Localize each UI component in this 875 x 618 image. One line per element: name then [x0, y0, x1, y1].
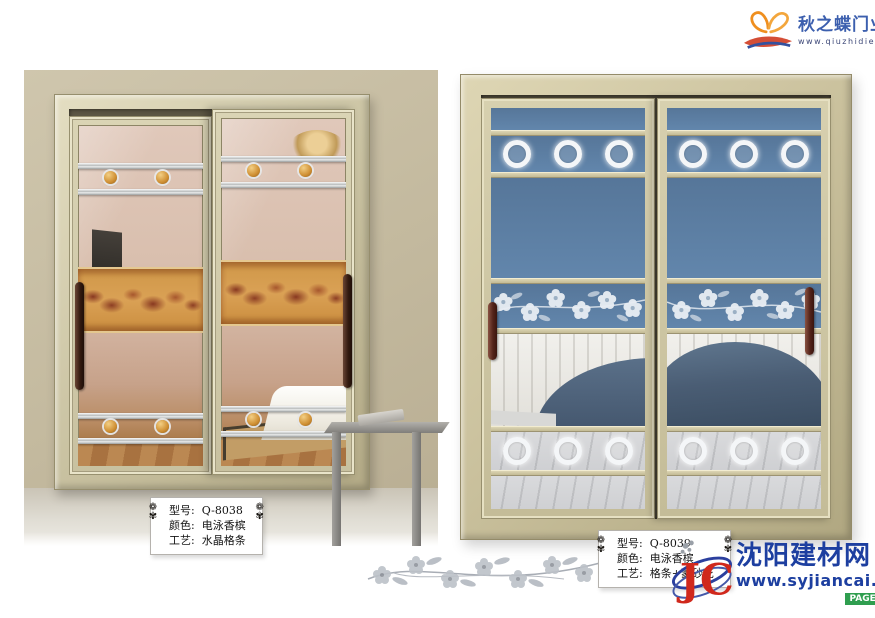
white-ring-ornament — [679, 140, 707, 168]
ring-ornament-band — [667, 136, 821, 172]
right-door-glass-1 — [491, 108, 645, 509]
amber-disc-ornament — [299, 164, 312, 177]
table-leg — [332, 432, 341, 546]
white-ring-ornament — [730, 437, 758, 465]
page-indicator: PAGE: 2 4 — [736, 593, 875, 605]
clear-glass-sofa-view — [491, 334, 645, 426]
right-door-track — [481, 95, 831, 519]
floral-branch-icon — [364, 549, 604, 615]
blue-glass-panel — [667, 178, 821, 278]
page-label-badge: PAGE: — [845, 593, 875, 605]
watermark: JC 沈阳建材网 www.syjiancai.com PAGE: 2 4 — [670, 537, 875, 611]
color-value: 电泳香槟 — [202, 519, 246, 532]
craft-value: 水晶格条 — [202, 534, 246, 547]
clear-glass-bottom-band — [667, 476, 821, 509]
silver-bar — [221, 406, 346, 412]
clear-glass-sofa-view — [667, 334, 821, 426]
color-label: 颜色: — [169, 519, 195, 532]
brand-website: www.qiuzhidie.com — [798, 37, 875, 46]
brand-text: 秋之蝶门业 www.qiuzhidie.com — [798, 16, 875, 46]
blue-glass-band — [491, 108, 645, 130]
silver-bar — [221, 182, 346, 188]
silver-bar — [221, 156, 346, 162]
right-door-handle-right — [805, 287, 814, 355]
ring-ornament-band-lower — [491, 432, 645, 470]
craft-row: 工艺:水晶格条 — [169, 533, 246, 548]
amber-disc-ornament — [104, 420, 117, 433]
floor-through-glass — [491, 410, 556, 426]
right-door-photo — [458, 70, 853, 545]
floral-ornament-icon: ❁ ✾ — [595, 536, 607, 554]
table-leg — [412, 432, 421, 546]
right-sliding-door — [460, 74, 852, 540]
left-door-handle-left — [75, 282, 84, 390]
white-ring-ornament — [503, 437, 531, 465]
white-ring-ornament — [605, 437, 633, 465]
brand-name: 秋之蝶门业 — [798, 16, 875, 35]
right-door-glass-2 — [667, 108, 821, 509]
model-label: 型号: — [617, 537, 643, 550]
clear-glass-bottom-band — [491, 476, 645, 509]
horse-pattern-band — [78, 267, 203, 333]
jc-monogram-icon: JC — [670, 537, 734, 611]
silver-bar — [78, 438, 203, 444]
ring-ornament-band-lower — [667, 432, 821, 470]
table-top — [324, 422, 450, 433]
right-door-handle-left — [488, 302, 497, 360]
butterfly-icon — [740, 6, 796, 54]
white-ring-ornament — [730, 140, 758, 168]
floral-ornament-icon: ❁ ✾ — [254, 503, 266, 521]
left-door-panel-1 — [69, 116, 212, 475]
frosted-floral-band — [667, 284, 821, 328]
color-label: 颜色: — [617, 552, 643, 565]
right-door-panel-1 — [481, 98, 655, 519]
craft-label: 工艺: — [169, 534, 195, 547]
watermark-site-name: 沈阳建材网 — [736, 541, 875, 571]
amber-disc-ornament — [247, 164, 260, 177]
watermark-text: 沈阳建材网 www.syjiancai.com PAGE: 2 4 — [736, 541, 875, 605]
amber-disc-ornament — [156, 420, 169, 433]
amber-disc-ornament — [247, 413, 260, 426]
color-row: 颜色:电泳香槟 — [169, 518, 246, 533]
product-label-left: ❁ ✾ ❁ ✾ 型号:Q-8038 颜色:电泳香槟 工艺:水晶格条 — [150, 497, 263, 555]
floral-pattern-icon — [491, 284, 645, 328]
side-table — [314, 414, 464, 546]
horse-pattern-band — [221, 260, 346, 326]
silver-bar — [78, 163, 203, 169]
catalog-page: 秋之蝶门业 www.qiuzhidie.com — [0, 0, 875, 618]
blue-glass-band — [667, 108, 821, 130]
silver-bar — [78, 189, 203, 195]
amber-disc-ornament — [104, 171, 117, 184]
model-label: 型号: — [169, 504, 195, 517]
amber-disc-ornament — [156, 171, 169, 184]
floral-pattern-icon — [667, 284, 821, 328]
left-door-handle-right — [343, 274, 352, 388]
white-ring-ornament — [781, 140, 809, 168]
silver-bar — [78, 413, 203, 419]
brand-logo: 秋之蝶门业 www.qiuzhidie.com — [740, 6, 875, 54]
white-ring-ornament — [679, 437, 707, 465]
blue-glass-panel — [491, 178, 645, 278]
floral-ornament-icon: ❁ ✾ — [147, 503, 159, 521]
white-ring-ornament — [503, 140, 531, 168]
watermark-site-url: www.syjiancai.com — [736, 571, 875, 591]
frosted-floral-band — [491, 284, 645, 328]
craft-label: 工艺: — [617, 567, 643, 580]
left-door-track — [69, 109, 355, 475]
sofa-through-glass — [667, 342, 821, 426]
ring-ornament-band — [491, 136, 645, 172]
left-door-photo — [24, 70, 438, 546]
white-ring-ornament — [554, 140, 582, 168]
model-value: Q-8038 — [202, 504, 243, 517]
white-ring-ornament — [781, 437, 809, 465]
amber-disc-ornament — [299, 413, 312, 426]
model-row: 型号:Q-8038 — [169, 503, 246, 518]
svg-text:JC: JC — [676, 555, 734, 605]
white-ring-ornament — [605, 140, 633, 168]
white-ring-ornament — [554, 437, 582, 465]
left-door-glass-1 — [78, 125, 203, 466]
